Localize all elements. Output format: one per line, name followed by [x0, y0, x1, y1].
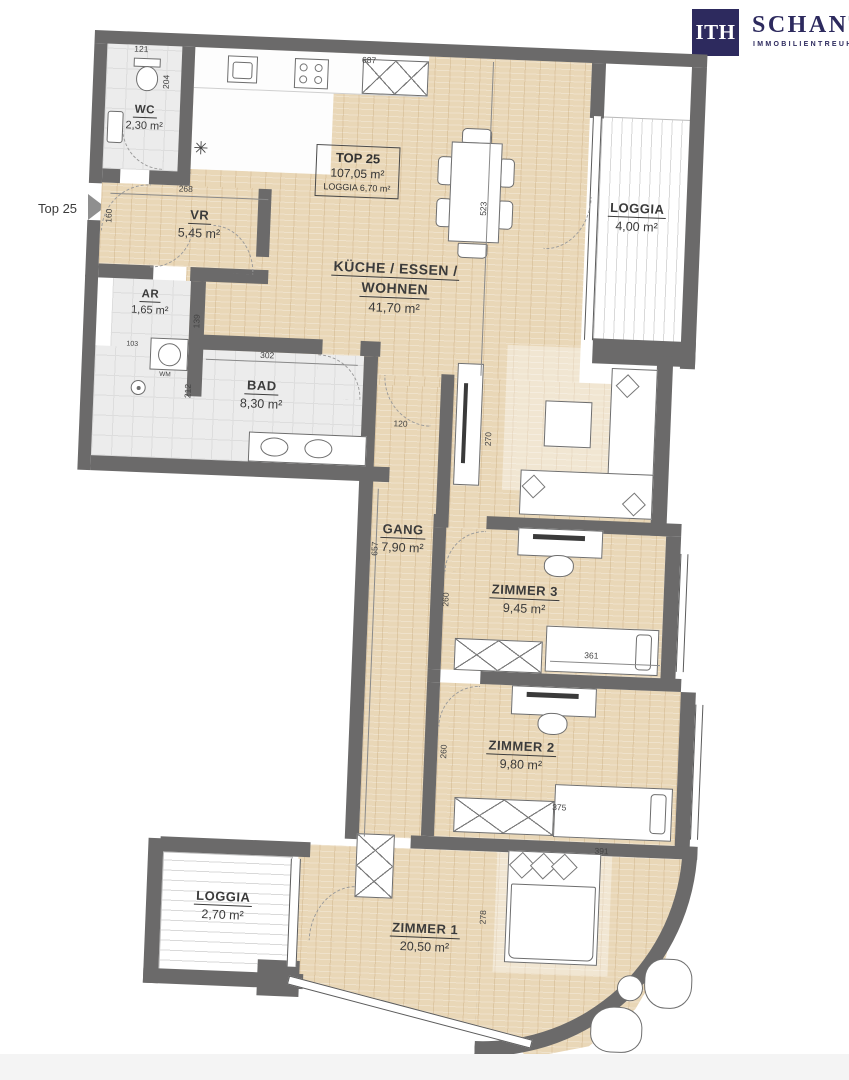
- kitchen-sink-icon: [227, 55, 258, 83]
- wall-segment: [592, 338, 696, 367]
- dimension-label: 268: [179, 183, 194, 194]
- floorplan-page: ITH SCHANTL IMMOBILIENTREUHAND Top 25: [0, 0, 849, 1080]
- bed-pillow: [649, 794, 667, 835]
- tv-sideboard: [453, 363, 484, 486]
- room-label-wc: WC 2,30 m²: [125, 99, 164, 132]
- room-label-loggia-bottom: LOGGIA 2,70 m²: [193, 887, 253, 923]
- wall-segment: [360, 341, 381, 357]
- dining-table: [448, 141, 503, 243]
- dimension-label: 139: [191, 314, 202, 329]
- kitchen-sink-basin: [232, 62, 253, 80]
- dimension-label: 120: [393, 418, 408, 429]
- dimension-label: 523: [478, 201, 489, 216]
- entry-marker-label: Top 25: [38, 201, 77, 216]
- coffee-table: [544, 400, 593, 448]
- wall-segment: [590, 63, 606, 119]
- page-edge: [0, 1054, 849, 1080]
- dimension-label: 687: [362, 55, 377, 66]
- washing-machine-drum: [158, 343, 182, 367]
- dimension-label: 375: [552, 802, 567, 813]
- dimension-label: 391: [594, 846, 609, 857]
- office-chair: [537, 712, 568, 735]
- dimension-label: 160: [103, 208, 114, 223]
- dimension-label: 260: [440, 592, 451, 607]
- wall-segment: [433, 514, 447, 528]
- stove-icon: [294, 58, 329, 89]
- wardrobe: [454, 638, 543, 674]
- room-label-zimmer2: ZIMMER 2 9,80 m²: [486, 736, 557, 773]
- ith-logo-icon: ITH: [692, 9, 739, 56]
- bed-blanket: [508, 883, 596, 961]
- dimension-label: 278: [478, 910, 489, 925]
- wardrobe: [453, 797, 554, 836]
- desk: [517, 527, 603, 558]
- armchair: [589, 1006, 643, 1054]
- room-label-loggia-right: LOGGIA 4,00 m²: [607, 199, 667, 235]
- unit-loggia-area: LOGGIA 6,70 m²: [322, 181, 392, 194]
- room-label-zimmer1: ZIMMER 1 20,50 m²: [389, 919, 460, 956]
- dimension-label: 204: [161, 75, 172, 90]
- dining-chair: [457, 243, 488, 259]
- armchair: [643, 958, 693, 1010]
- logo-subtitle: IMMOBILIENTREUHAND: [753, 41, 849, 48]
- office-chair: [543, 554, 574, 577]
- dimension-label: 361: [584, 650, 599, 661]
- fridge-symbol: ✳: [193, 138, 209, 160]
- wardrobe-shaft: [354, 833, 395, 898]
- dimension-label: 121: [134, 44, 149, 55]
- room-label-gang: GANG 7,90 m²: [380, 520, 426, 556]
- dimension-label: 657: [369, 541, 380, 556]
- wall-segment: [98, 263, 154, 279]
- unit-info-box: TOP 25 107,05 m² LOGGIA 6,70 m²: [315, 144, 401, 199]
- dimension-label: 212: [182, 384, 193, 399]
- room-label-wohnen: KÜCHE / ESSEN / WOHNEN 41,70 m²: [330, 258, 460, 318]
- floorplan-drawing: ✳: [54, 30, 744, 1075]
- unit-area: 107,05 m²: [322, 165, 393, 182]
- dimension-label: 103: [126, 341, 138, 348]
- dimension-label: 260: [438, 744, 449, 759]
- room-label-zimmer3: ZIMMER 3 9,45 m²: [489, 580, 560, 617]
- washing-machine-icon: [149, 337, 188, 370]
- room-label-vr: VR 5,45 m²: [177, 206, 221, 242]
- washing-machine-label: WM: [159, 371, 171, 378]
- wall-segment: [427, 669, 441, 683]
- logo-company-name: SCHANTL: [752, 12, 849, 39]
- dining-chair: [498, 200, 513, 230]
- room-label-ar: AR 1,65 m²: [131, 284, 170, 317]
- wall-segment: [102, 168, 121, 183]
- dimension-label: 270: [483, 432, 494, 447]
- room-label-bad: BAD 8,30 m²: [240, 376, 284, 412]
- dining-chair: [500, 158, 515, 188]
- unit-title: TOP 25: [323, 149, 394, 167]
- dimension-label: 302: [260, 350, 275, 361]
- washbasin-icon: [106, 111, 123, 144]
